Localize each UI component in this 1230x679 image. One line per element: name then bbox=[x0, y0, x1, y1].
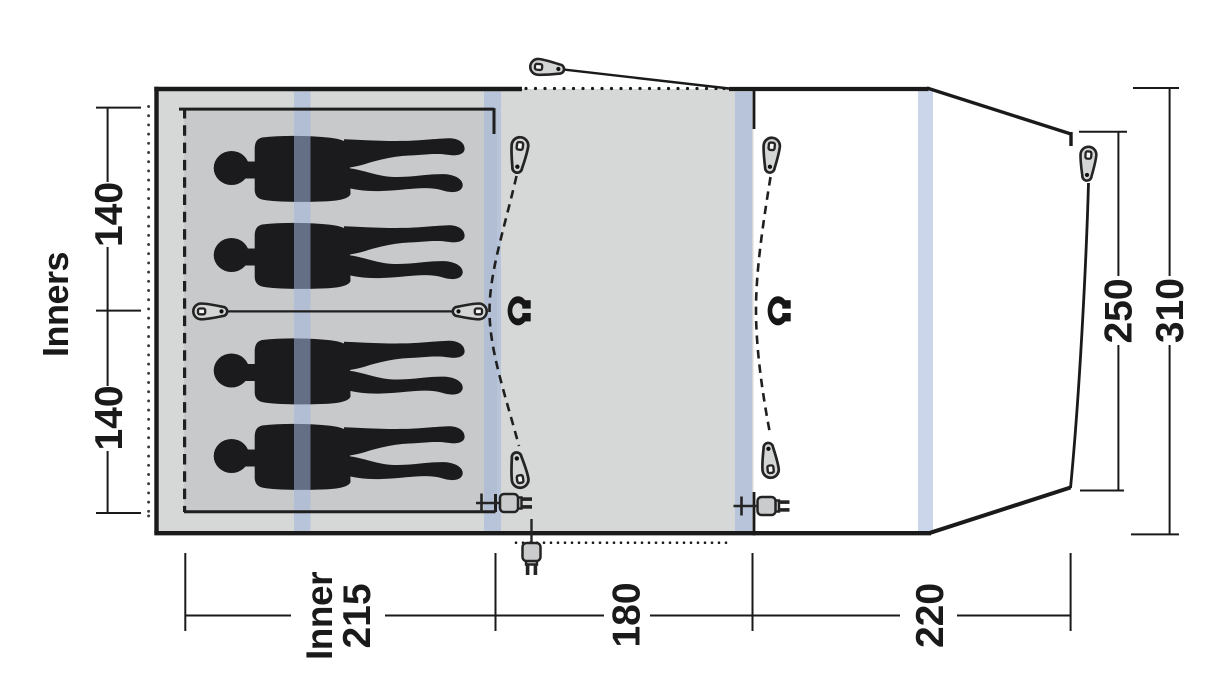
svg-text:Inner: Inner bbox=[299, 572, 340, 660]
svg-text:140: 140 bbox=[88, 385, 131, 450]
svg-text:180: 180 bbox=[606, 582, 649, 647]
svg-text:Inners: Inners bbox=[35, 252, 76, 357]
svg-text:250: 250 bbox=[1098, 278, 1141, 343]
svg-text:310: 310 bbox=[1149, 278, 1192, 343]
svg-text:215: 215 bbox=[336, 583, 379, 648]
svg-text:140: 140 bbox=[88, 182, 131, 247]
svg-text:220: 220 bbox=[909, 583, 952, 648]
